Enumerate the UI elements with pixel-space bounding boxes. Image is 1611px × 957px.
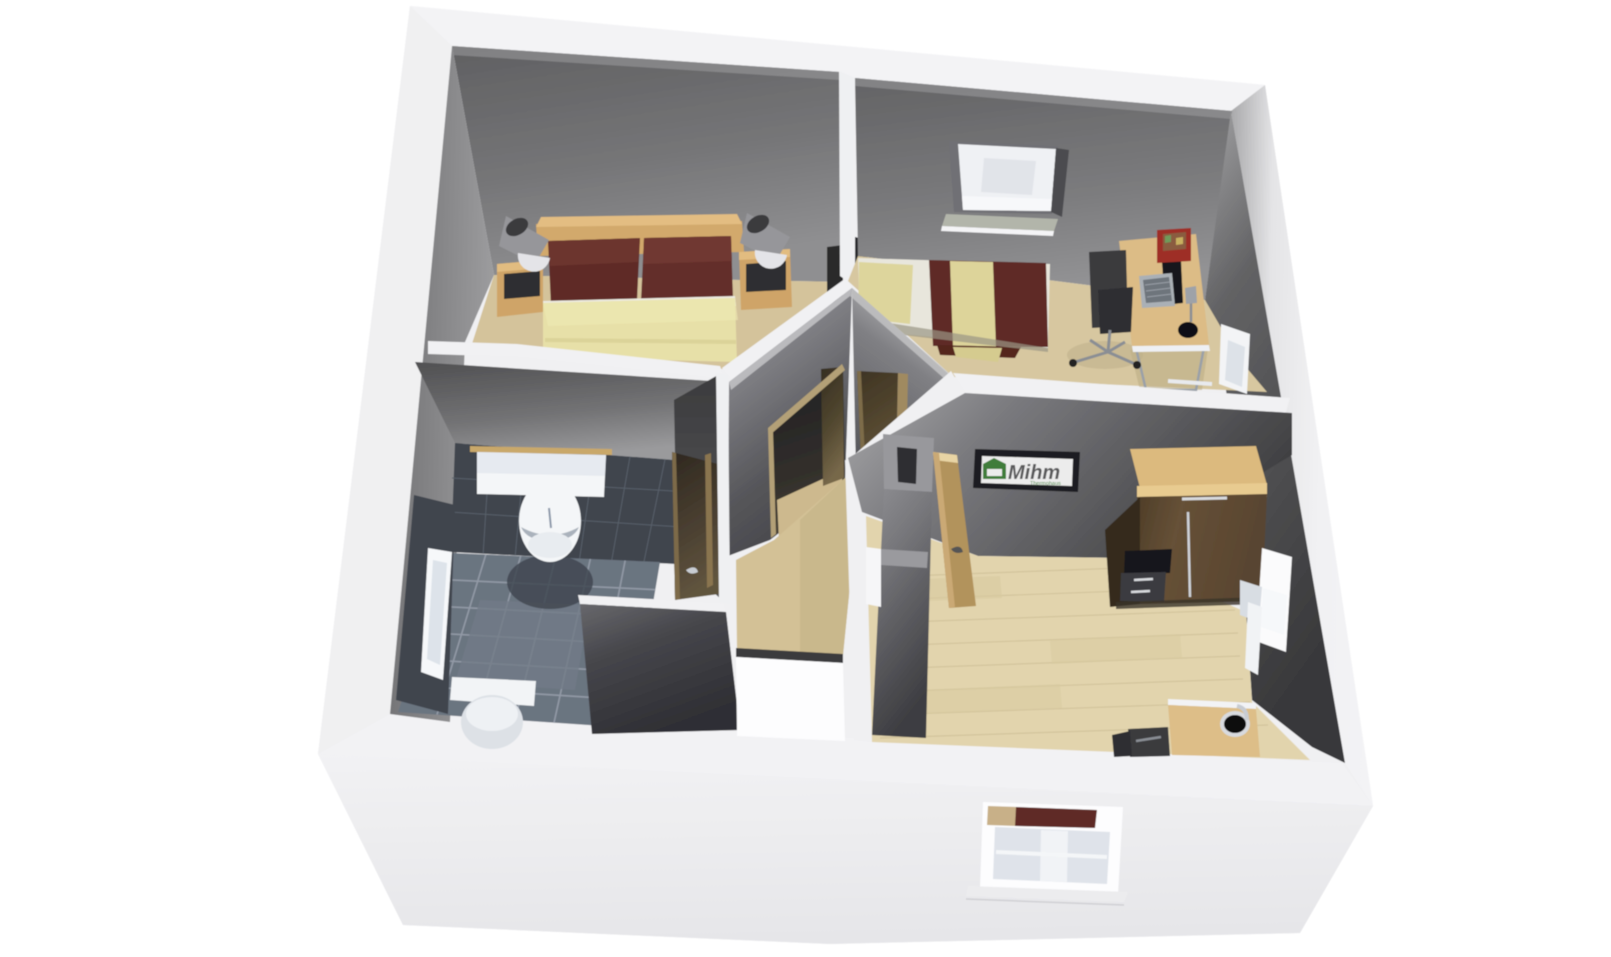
svg-text:Thermohaus: Thermohaus [1030, 481, 1061, 487]
